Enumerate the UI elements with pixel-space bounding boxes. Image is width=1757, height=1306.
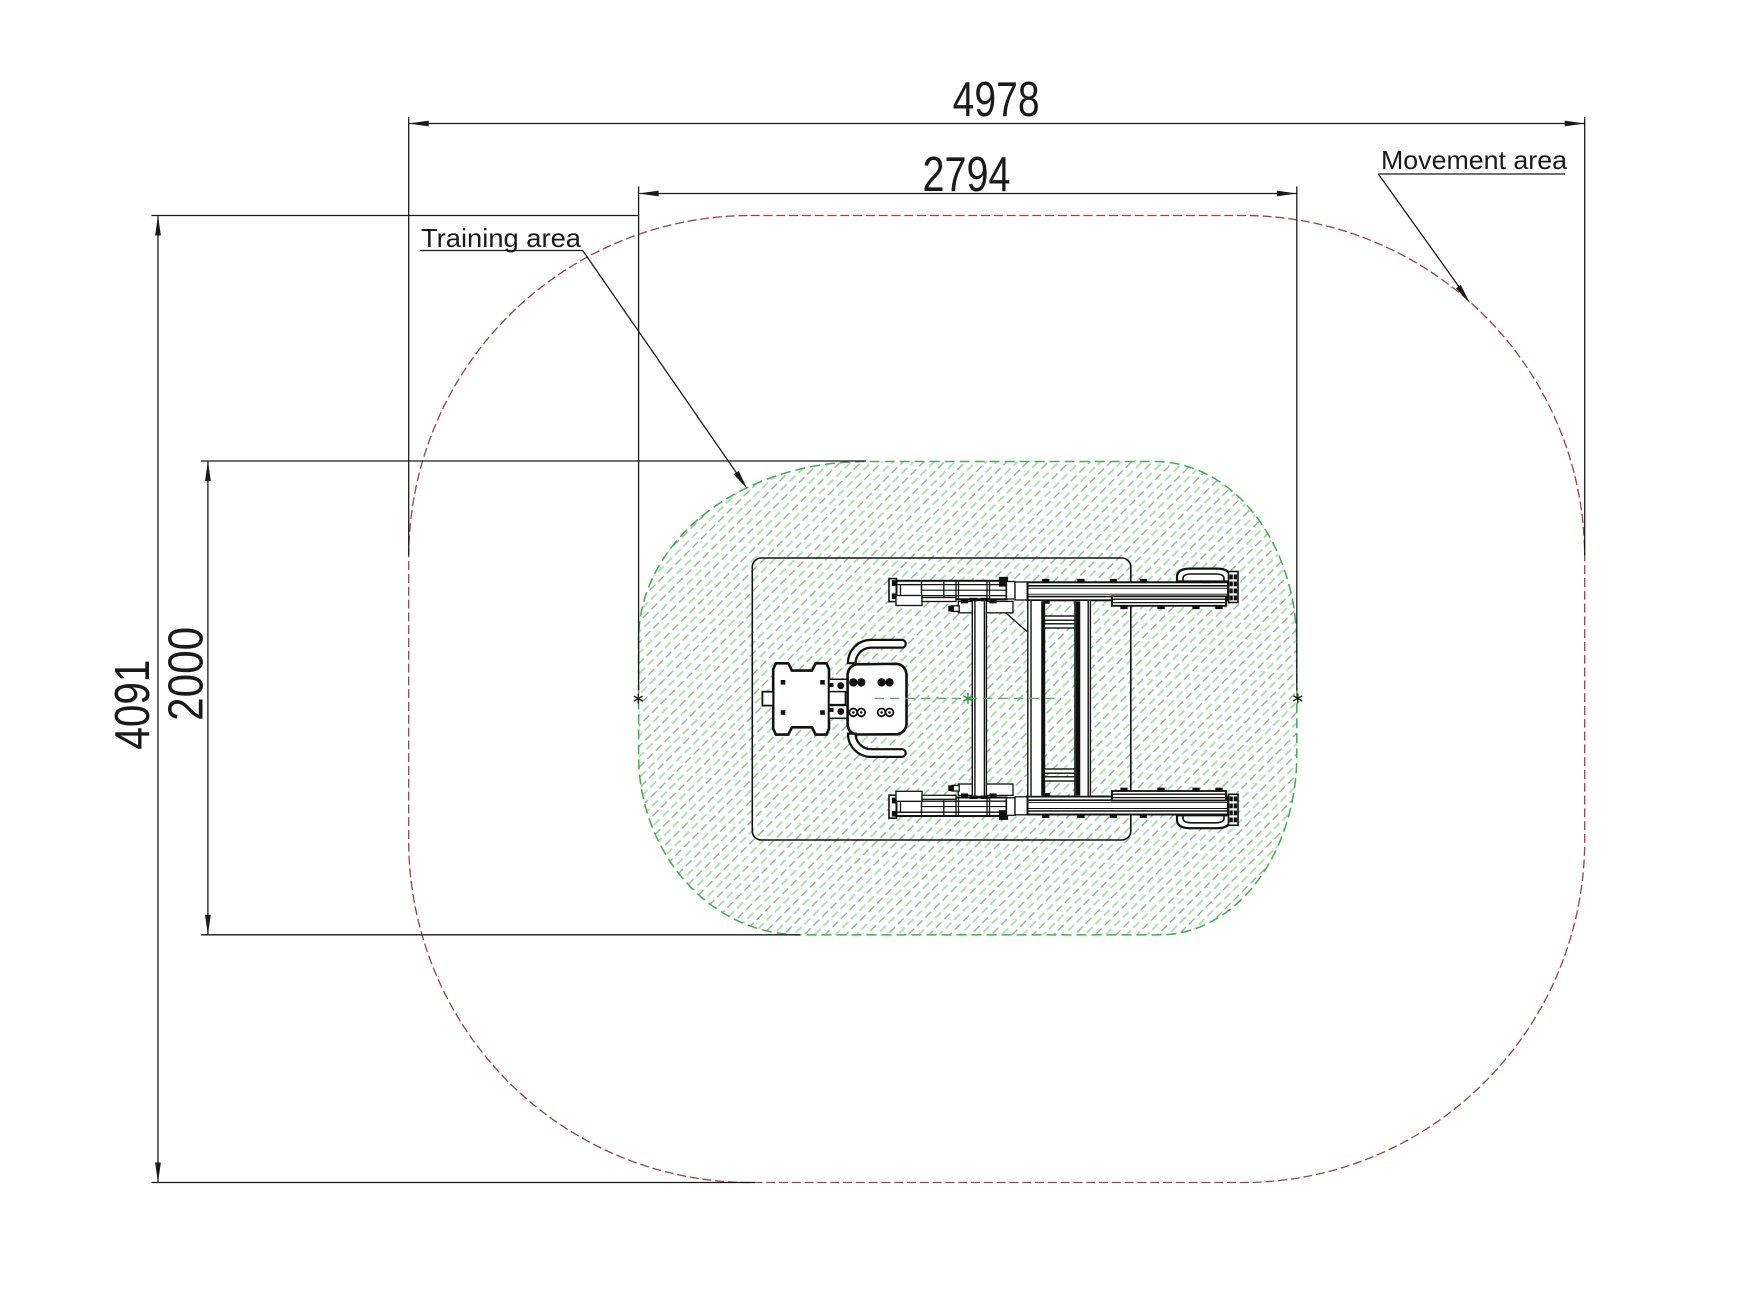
- svg-text:Training area: Training area: [421, 223, 582, 253]
- svg-text:4091: 4091: [106, 660, 160, 750]
- svg-text:2794: 2794: [923, 148, 1011, 202]
- svg-text:Movement area: Movement area: [1381, 145, 1568, 175]
- svg-text:2000: 2000: [160, 627, 214, 721]
- svg-text:4978: 4978: [953, 73, 1040, 127]
